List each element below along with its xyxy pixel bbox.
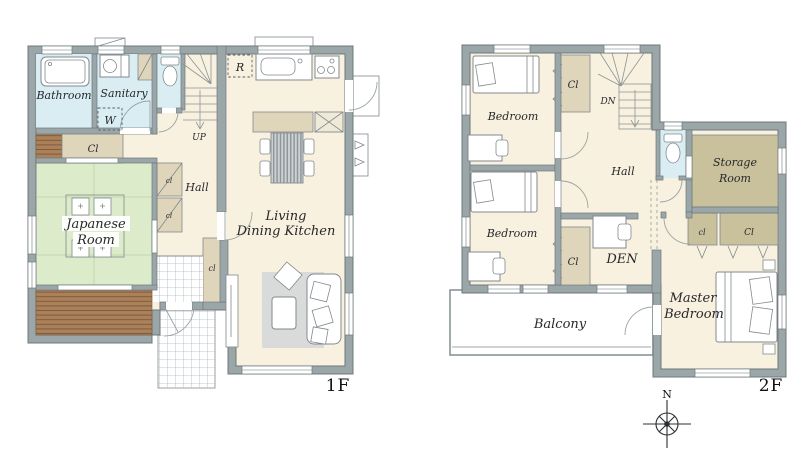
washing-machine xyxy=(100,55,129,77)
kitchen-sink xyxy=(256,54,312,80)
label-closet-entrance: cl xyxy=(208,264,215,273)
label-bedroom-top: Bedroom xyxy=(487,110,539,123)
back-door-stoop xyxy=(353,76,379,116)
label-floor-1f: 1F xyxy=(326,376,351,396)
sanitary-corner-shelf xyxy=(138,54,152,80)
label-bathroom: Bathroom xyxy=(35,89,91,102)
label-closet-master-small: cl xyxy=(698,228,705,237)
tv-board xyxy=(226,275,238,347)
closet-bedroom-bottom xyxy=(557,227,590,285)
desk-bedroom-bottom xyxy=(468,252,505,281)
coffee-table xyxy=(272,297,296,329)
bay-window-right xyxy=(353,134,368,176)
label-closet-master-wide: Cl xyxy=(744,228,754,238)
bathtub xyxy=(41,57,89,86)
label-floor-2f: 2F xyxy=(759,376,784,396)
label-master-2: Bedroom xyxy=(663,307,724,322)
label-den: DEN xyxy=(605,252,638,267)
label-japanese-room-1: Japanese xyxy=(63,217,126,232)
label-balcony: Balcony xyxy=(533,317,587,332)
bed-bedroom-top xyxy=(473,56,539,93)
label-bedroom-bottom: Bedroom xyxy=(486,227,538,240)
label-ldk-2: Dining Kitchen xyxy=(236,224,336,239)
floor-plan-drawing: Bathroom Sanitary W Cl cl cl Japanese Ro… xyxy=(0,0,800,470)
entrance-genkan xyxy=(153,256,203,302)
label-dn: DN xyxy=(599,97,616,107)
entrance-porch-grid xyxy=(158,308,215,388)
label-storage-1: Storage xyxy=(713,156,757,169)
stove xyxy=(315,56,339,78)
desk-bedroom-top xyxy=(468,135,508,161)
floor-plan-page: Bathroom Sanitary W Cl cl cl Japanese Ro… xyxy=(0,0,800,470)
label-master-1: Master xyxy=(669,291,718,306)
bed-master xyxy=(716,260,777,354)
label-washer: W xyxy=(104,114,117,127)
label-closet-hall-1f: Cl xyxy=(88,144,99,155)
label-closet-top: Cl xyxy=(568,80,579,91)
deck-bottom xyxy=(36,290,152,335)
plan-2f: Bedroom Cl DN Hall Storage Room cl Cl Be… xyxy=(450,45,786,396)
bed-bedroom-bottom xyxy=(471,172,537,212)
label-hall-2f: Hall xyxy=(610,165,635,178)
desk-den xyxy=(593,216,631,248)
compass-icon xyxy=(643,400,691,448)
label-up: UP xyxy=(192,133,207,143)
label-sanitary: Sanitary xyxy=(100,87,148,100)
kitchen-cabinet-x xyxy=(315,112,343,132)
plan-1f: Bathroom Sanitary W Cl cl cl Japanese Ro… xyxy=(28,37,379,396)
compass-north-label: N xyxy=(662,388,672,401)
label-closet-small-b: cl xyxy=(166,212,172,220)
label-japanese-room-2: Room xyxy=(76,233,115,248)
label-closet-bottom: Cl xyxy=(568,257,579,268)
label-fridge: R xyxy=(235,61,244,74)
kitchen-counter xyxy=(253,112,313,132)
sofa xyxy=(307,274,341,344)
room-storage xyxy=(692,135,778,207)
compass-rose: N xyxy=(643,388,691,448)
label-ldk-1: Living xyxy=(265,209,307,224)
label-closet-small-a: cl xyxy=(166,177,172,185)
label-hall-1f: Hall xyxy=(184,181,209,194)
label-storage-2: Room xyxy=(718,172,751,185)
